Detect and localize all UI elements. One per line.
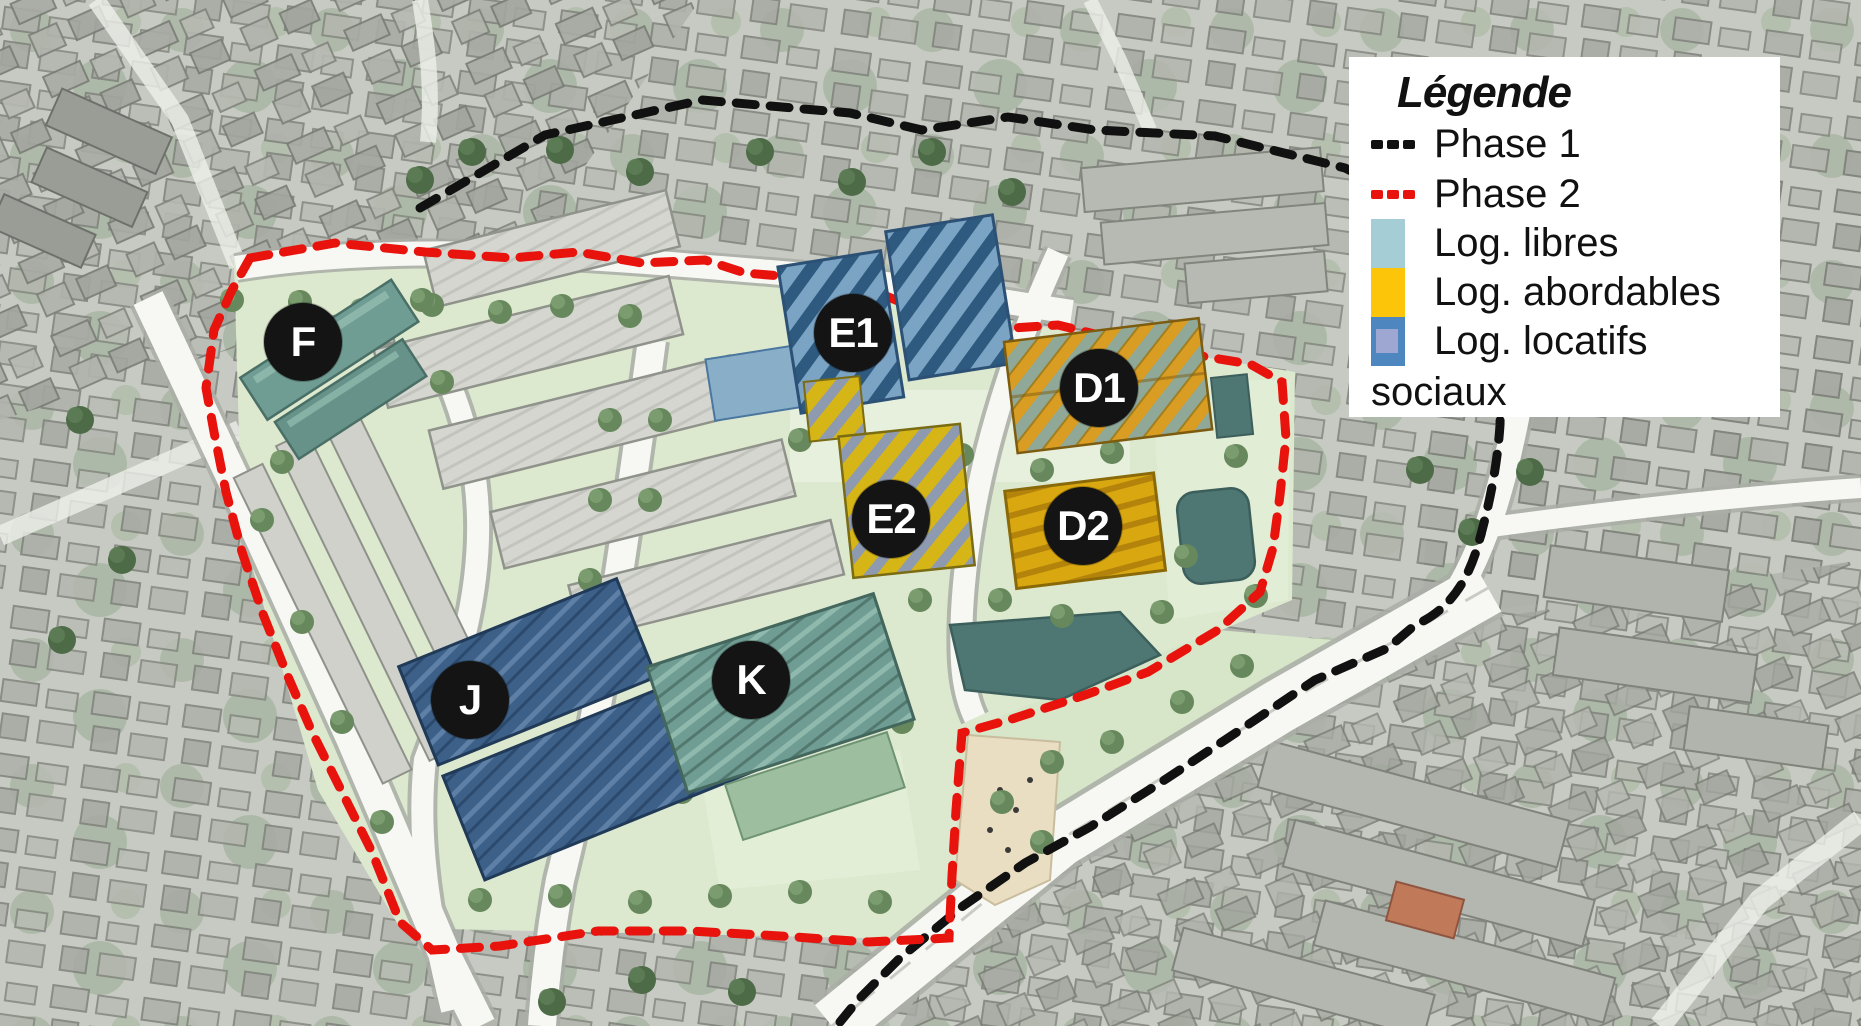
map-marker-d1: D1 [1060, 349, 1138, 427]
map-marker-e2: E2 [852, 480, 930, 558]
legend-row-log-abordables: Log. abordables [1371, 268, 1780, 317]
legend: Légende Phase 1 Phase 2 Log. libres Log.… [1349, 57, 1780, 417]
map-marker-e1: E1 [814, 294, 892, 372]
legend-label-log-locatifs: Log. locatifs [1434, 319, 1647, 364]
legend-row-log-libres: Log. libres [1371, 219, 1780, 268]
abordables-color-swatch [1371, 268, 1405, 317]
locatifs-inner-square [1376, 329, 1398, 353]
map-marker-f: F [264, 303, 342, 381]
legend-label-phase2: Phase 2 [1434, 172, 1581, 217]
legend-row-phase1: Phase 1 [1371, 119, 1780, 169]
legend-label-sociaux: sociaux [1371, 370, 1780, 415]
legend-row-phase2: Phase 2 [1371, 169, 1780, 219]
phase1-dash-swatch [1371, 140, 1415, 149]
legend-label-log-libres: Log. libres [1434, 221, 1619, 266]
legend-title: Légende [1397, 67, 1780, 119]
map-marker-j: J [431, 661, 509, 739]
legend-label-phase1: Phase 1 [1434, 122, 1581, 167]
urban-masterplan-screenshot: F E1 E2 D1 D2 J K Légende Phase 1 Phase … [0, 0, 1861, 1026]
libres-color-swatch [1371, 219, 1405, 268]
legend-label-log-abordables: Log. abordables [1434, 270, 1721, 315]
locatifs-color-swatch [1371, 317, 1405, 366]
pond [1175, 486, 1256, 585]
map-marker-d2: D2 [1044, 487, 1122, 565]
pond-small [1211, 374, 1253, 437]
legend-row-log-locatifs: Log. locatifs [1371, 317, 1780, 366]
phase2-dash-swatch [1371, 190, 1415, 199]
map-marker-k: K [712, 641, 790, 719]
